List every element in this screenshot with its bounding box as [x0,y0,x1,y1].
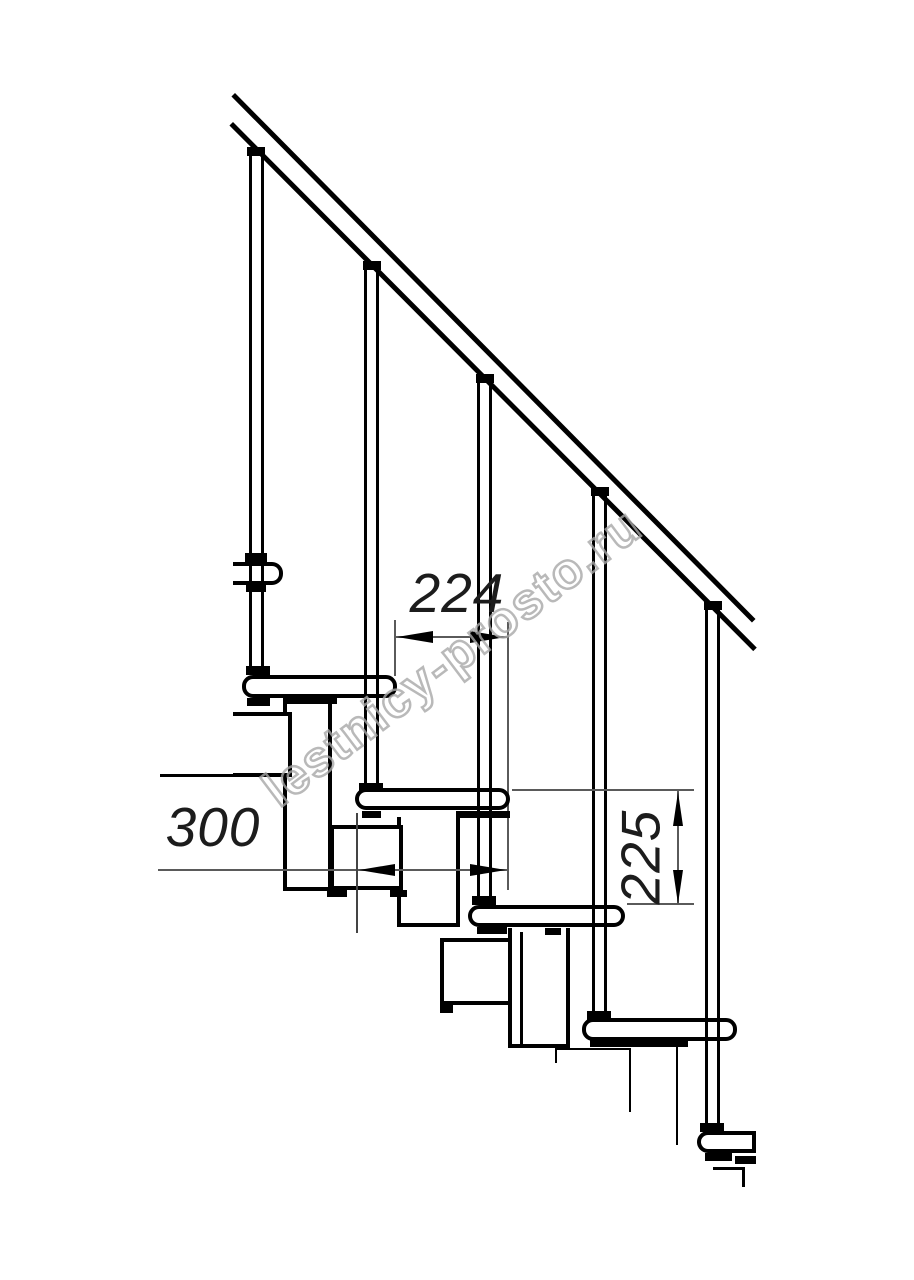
contact-pad [545,928,561,935]
arrowhead-up-icon [673,792,683,826]
handrail-top-line [231,93,755,623]
contact-pad [735,1156,756,1164]
staircase-technical-drawing: 224 300 225 lestnicy-prosto.ru [0,0,914,1280]
arrowhead-right-icon [470,864,506,876]
step-module-connector-3 [508,928,570,1048]
contact-pad [283,697,337,704]
tread-5-partial [697,1131,756,1153]
baluster-5 [705,602,720,1132]
lower-structure-line-h1 [555,1048,631,1050]
contact-pad [390,890,407,897]
baluster-collar [359,783,383,792]
arrowhead-left-icon [359,864,395,876]
contact-pad [247,698,270,706]
floor-step-line-v [742,1167,745,1187]
floor-step-line-h [713,1167,744,1170]
module-centerline [356,813,358,933]
step-module-3 [440,938,517,1005]
arrowhead-down-icon [673,870,683,904]
step-module-2 [330,825,403,890]
baluster-collar [700,1123,724,1132]
contact-pad [362,811,381,818]
dimension-line-300 [158,869,508,871]
extension-line-225-top [512,789,694,791]
dimension-label-225: 225 [614,810,669,905]
contact-pad [327,890,347,897]
baluster-collar [246,584,266,592]
baluster-1 [249,148,264,675]
contact-pad [590,1040,688,1047]
baluster-collar [587,1011,611,1020]
baluster-collar [246,666,270,675]
contact-pad [705,1153,732,1161]
lower-structure-line-v3 [555,1048,557,1063]
step-module-connector-2 [397,817,460,927]
contact-pad [440,1005,453,1013]
lower-structure-line-v1 [629,1048,631,1112]
extension-line-224-300-right [507,622,509,890]
contact-pad [477,927,507,934]
dimension-label-300: 300 [158,800,268,855]
lower-structure-line-v2 [676,1043,678,1145]
upper-floor-line [160,774,233,777]
baluster-collar [245,553,267,562]
baluster-collar [472,896,496,905]
module-connector-3-inner-line [520,932,523,1044]
